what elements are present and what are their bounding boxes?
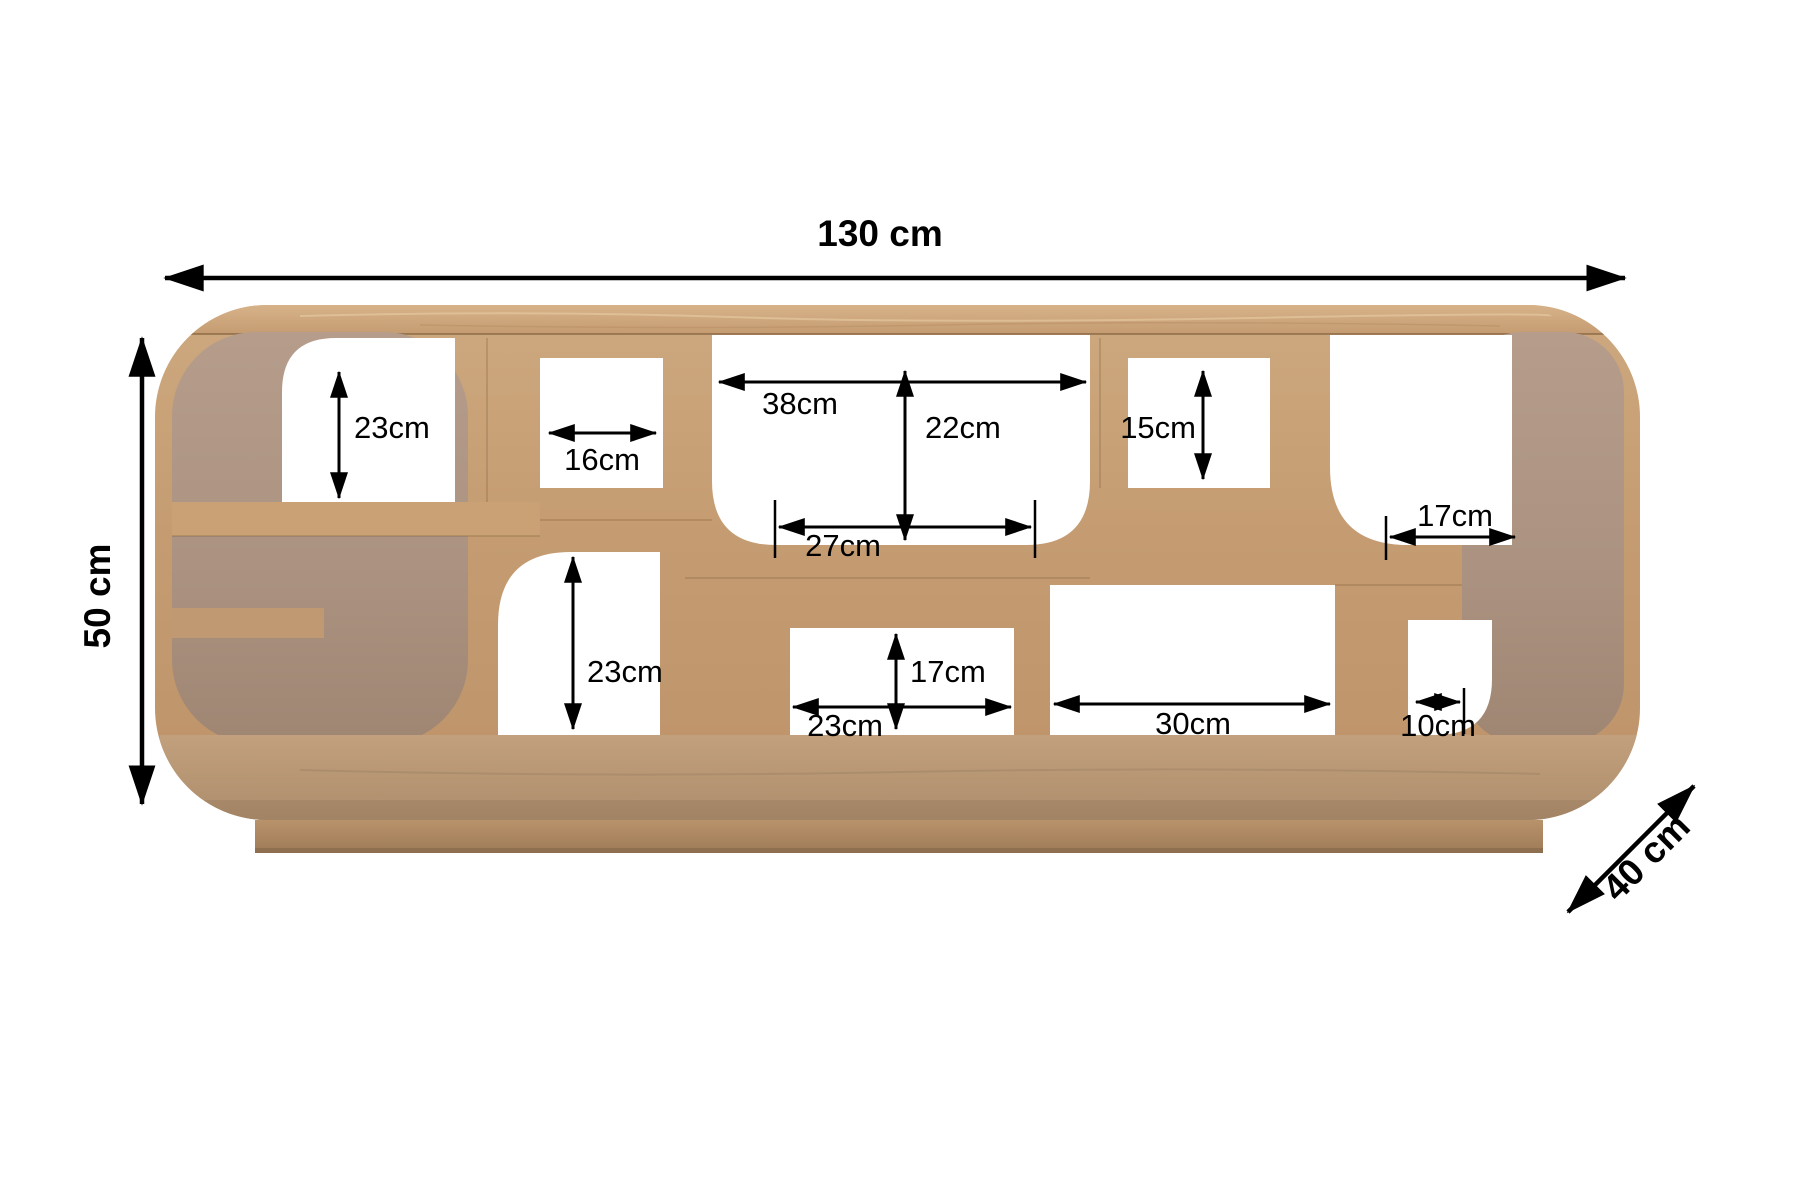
opening-center <box>712 335 1090 545</box>
dimension-label: 38cm <box>762 386 838 421</box>
dimension-label: 30cm <box>1155 706 1231 741</box>
furniture-dimension-diagram: 130 cm 50 cm 40 cm 23cm 16cm 38cm 22cm 1… <box>0 0 1800 1200</box>
dim-overall-width: 130 cm <box>165 213 1625 278</box>
dimension-label-width: 130 cm <box>817 213 943 254</box>
dimension-label: 22cm <box>925 410 1001 445</box>
dimension-label: 27cm <box>805 528 881 563</box>
dimension-label: 23cm <box>354 410 430 445</box>
dimension-label: 15cm <box>1120 410 1196 445</box>
dimension-label: 16cm <box>564 442 640 477</box>
furniture <box>155 305 1640 853</box>
dimension-label-height: 50 cm <box>77 544 118 649</box>
dimension-label: 10cm <box>1400 708 1476 743</box>
dimension-label: 17cm <box>1417 498 1493 533</box>
left-shelf-face <box>172 502 540 536</box>
dim-overall-depth: 40 cm <box>1568 786 1698 912</box>
left-lower-shelf-face <box>172 608 324 638</box>
opening-lower-left <box>498 552 660 735</box>
dimension-label-depth: 40 cm <box>1595 806 1698 909</box>
dimension-label: 23cm <box>807 708 883 743</box>
diagram-canvas: 130 cm 50 cm 40 cm 23cm 16cm 38cm 22cm 1… <box>0 0 1800 1200</box>
dim-overall-height: 50 cm <box>77 338 142 804</box>
dimension-label: 23cm <box>587 654 663 689</box>
plinth-shadow-edge <box>255 848 1543 853</box>
dimension-label: 17cm <box>910 654 986 689</box>
